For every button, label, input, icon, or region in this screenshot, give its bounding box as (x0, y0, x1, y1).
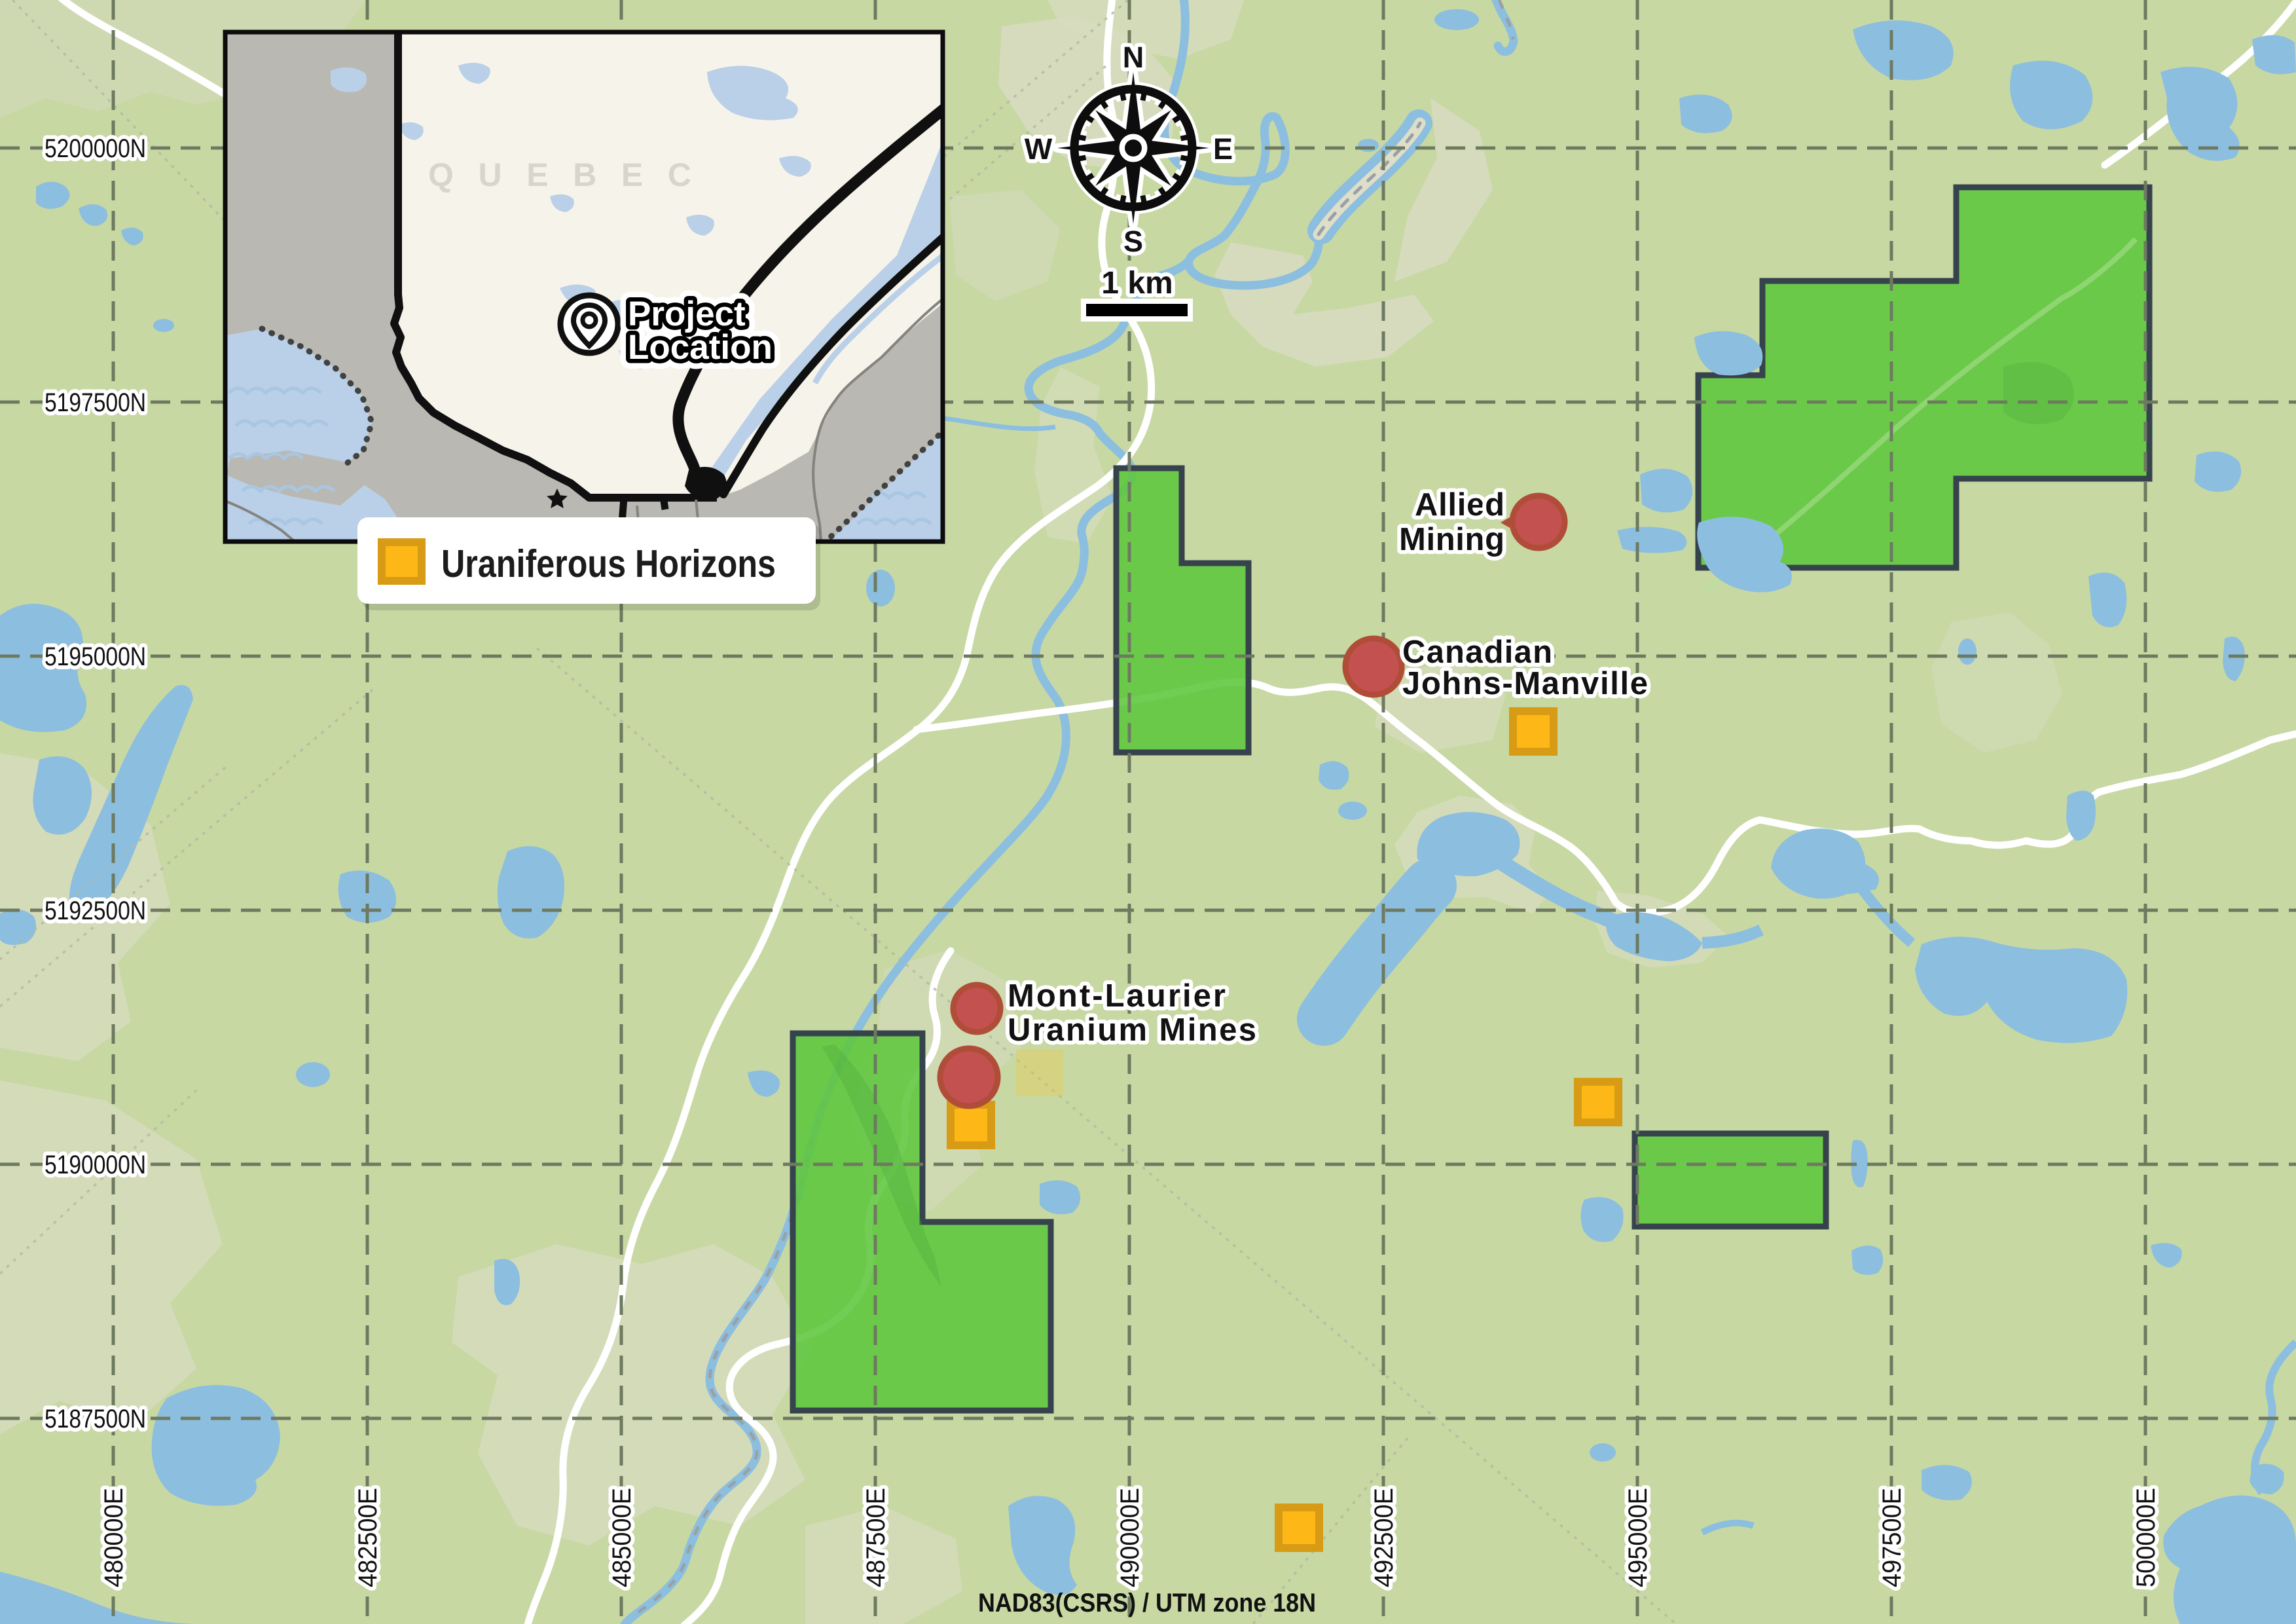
svg-text:5200000N: 5200000N (45, 134, 146, 163)
svg-text:487500E: 487500E (862, 1488, 890, 1587)
svg-text:Johns-Manville: Johns-Manville (1402, 666, 1648, 701)
svg-text:480000E: 480000E (100, 1488, 128, 1587)
svg-text:QUEBEC: QUEBEC (428, 157, 716, 193)
svg-text:Allied: Allied (1415, 487, 1504, 523)
svg-text:S: S (1123, 225, 1143, 258)
svg-text:W: W (1025, 132, 1053, 166)
svg-text:492500E: 492500E (1370, 1488, 1398, 1587)
svg-text:5192500N: 5192500N (45, 896, 146, 925)
svg-text:5197500N: 5197500N (45, 388, 146, 417)
svg-text:5187500N: 5187500N (45, 1405, 146, 1433)
svg-text:NAD83(CSRS) / UTM zone 18N: NAD83(CSRS) / UTM zone 18N (978, 1589, 1316, 1617)
svg-text:Uraniferous Horizons: Uraniferous Horizons (441, 542, 776, 585)
svg-text:482500E: 482500E (354, 1488, 382, 1587)
svg-text:5190000N: 5190000N (45, 1151, 146, 1179)
svg-text:E: E (1213, 132, 1233, 166)
svg-text:500000E: 500000E (2132, 1488, 2160, 1587)
svg-text:Canadian: Canadian (1402, 635, 1552, 670)
svg-text:490000E: 490000E (1116, 1488, 1144, 1587)
svg-text:Location: Location (628, 328, 773, 367)
svg-text:495000E: 495000E (1624, 1488, 1652, 1587)
svg-text:Mont-Laurier: Mont-Laurier (1008, 978, 1226, 1014)
svg-text:1 km: 1 km (1101, 266, 1173, 301)
svg-text:Mining: Mining (1399, 522, 1504, 557)
svg-text:N: N (1123, 41, 1144, 74)
svg-text:5195000N: 5195000N (45, 642, 146, 671)
svg-text:497500E: 497500E (1878, 1488, 1906, 1587)
svg-text:485000E: 485000E (608, 1488, 636, 1587)
